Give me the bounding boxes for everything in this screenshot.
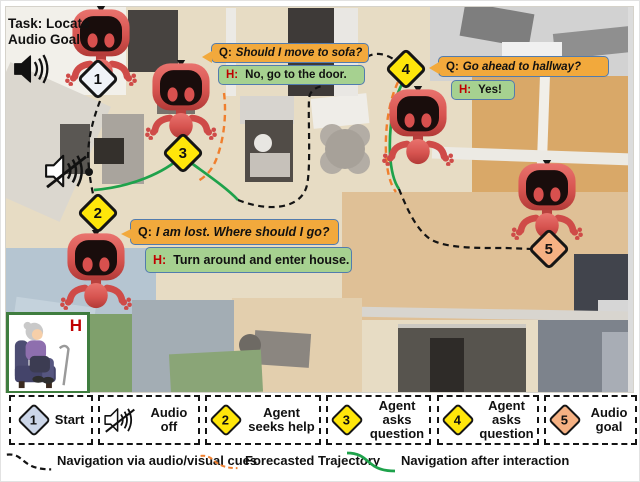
legend-text-seek-help: Agent seeks help <box>247 406 316 435</box>
q-prefix: Q: <box>138 225 152 239</box>
bubble-question-sofa: Q: Should I move to sofa? <box>211 43 369 63</box>
task-label: Task: Locate Audio Goal <box>8 16 90 48</box>
legend-item-seek-help: 2 Agent seeks help <box>205 395 321 445</box>
robot-agent-ask2 <box>376 85 460 166</box>
map-region-island-sink <box>254 134 272 152</box>
bubble-tail <box>202 51 212 63</box>
audio-off-icon <box>103 405 138 435</box>
map-region-small-table <box>94 138 124 164</box>
q-text: Should I move to sofa? <box>236 47 363 59</box>
legend-diamond-start: 1 <box>17 403 51 437</box>
bubble-human-yes: H: Yes! <box>451 80 515 100</box>
bubble-tail <box>121 228 133 240</box>
legend-item-audio-goal: 5 Audio goal <box>544 395 637 445</box>
bubble-tail <box>429 62 439 74</box>
q-prefix: Q: <box>446 61 459 73</box>
legend-item-ask-1: 3 Agent asks question <box>326 395 431 445</box>
legend-diamond-ask-1: 3 <box>330 403 364 437</box>
legend-label-interaction: Navigation after interaction <box>401 453 569 468</box>
map-region-grass-1 <box>86 314 134 393</box>
legend-line-forecast <box>199 449 239 475</box>
legend-diamond-seek-help: 2 <box>209 403 243 437</box>
h-prefix: H: <box>226 69 238 81</box>
legend-text-start: Start <box>55 413 85 427</box>
legend-item-ask-2: 4 Agent asks question <box>437 395 539 445</box>
robot-agent-goal <box>505 159 589 240</box>
audio-goal-speaker-icon <box>13 53 53 85</box>
bubble-human-turn: H: Turn around and enter house. <box>145 247 352 273</box>
robot-agent-ask1 <box>139 59 223 140</box>
task-line2: Audio Goal <box>8 32 90 48</box>
legend-line-interaction <box>345 449 397 475</box>
figure-canvas: 1 2 3 4 5 Task: Locate Audio Goal Q: Sho… <box>0 0 640 482</box>
bubble-human-door: H: No, go to the door. <box>218 65 365 85</box>
h-text: No, go to the door. <box>245 69 347 81</box>
legend-line-audio <box>5 449 53 475</box>
map-region-bottom-doorway <box>430 338 464 393</box>
map-region-desk <box>253 330 311 368</box>
legend-item-start: 1 Start <box>9 395 93 445</box>
legend-item-audio-off: Audio off <box>98 395 200 445</box>
h-text: Turn around and enter house. <box>173 253 349 267</box>
bubble-question-hallway: Q: Go ahead to hallway? <box>438 56 609 77</box>
human-label: H <box>70 316 82 336</box>
legend-diamond-audio-goal: 5 <box>548 403 582 437</box>
h-text: Yes! <box>478 84 502 96</box>
robot-agent-help <box>54 229 138 310</box>
legend: 1 Start Audio off 2 Agent seeks help 3 A… <box>1 393 640 482</box>
human-helper-photo: H <box>6 312 90 394</box>
map-region-right-edge <box>628 7 634 393</box>
legend-text-ask-1: Agent asks question <box>368 399 426 442</box>
q-prefix: Q: <box>219 47 232 59</box>
legend-text-ask-2: Agent asks question <box>479 399 534 442</box>
map-region-table-center <box>325 129 365 169</box>
map-region-island-shelf <box>250 153 290 177</box>
audio-off-icon <box>43 152 91 190</box>
q-text: I am lost. Where should I go? <box>156 225 330 239</box>
map-region-grass-2 <box>169 350 263 393</box>
task-line1: Task: Locate <box>8 16 90 32</box>
h-prefix: H: <box>153 253 166 267</box>
legend-text-audio-off: Audio off <box>143 406 195 435</box>
bubble-question-lost: Q: I am lost. Where should I go? <box>130 219 339 245</box>
h-prefix: H: <box>459 84 471 96</box>
q-text: Go ahead to hallway? <box>463 61 581 73</box>
legend-text-audio-goal: Audio goal <box>586 406 632 435</box>
legend-diamond-ask-2: 4 <box>441 403 475 437</box>
